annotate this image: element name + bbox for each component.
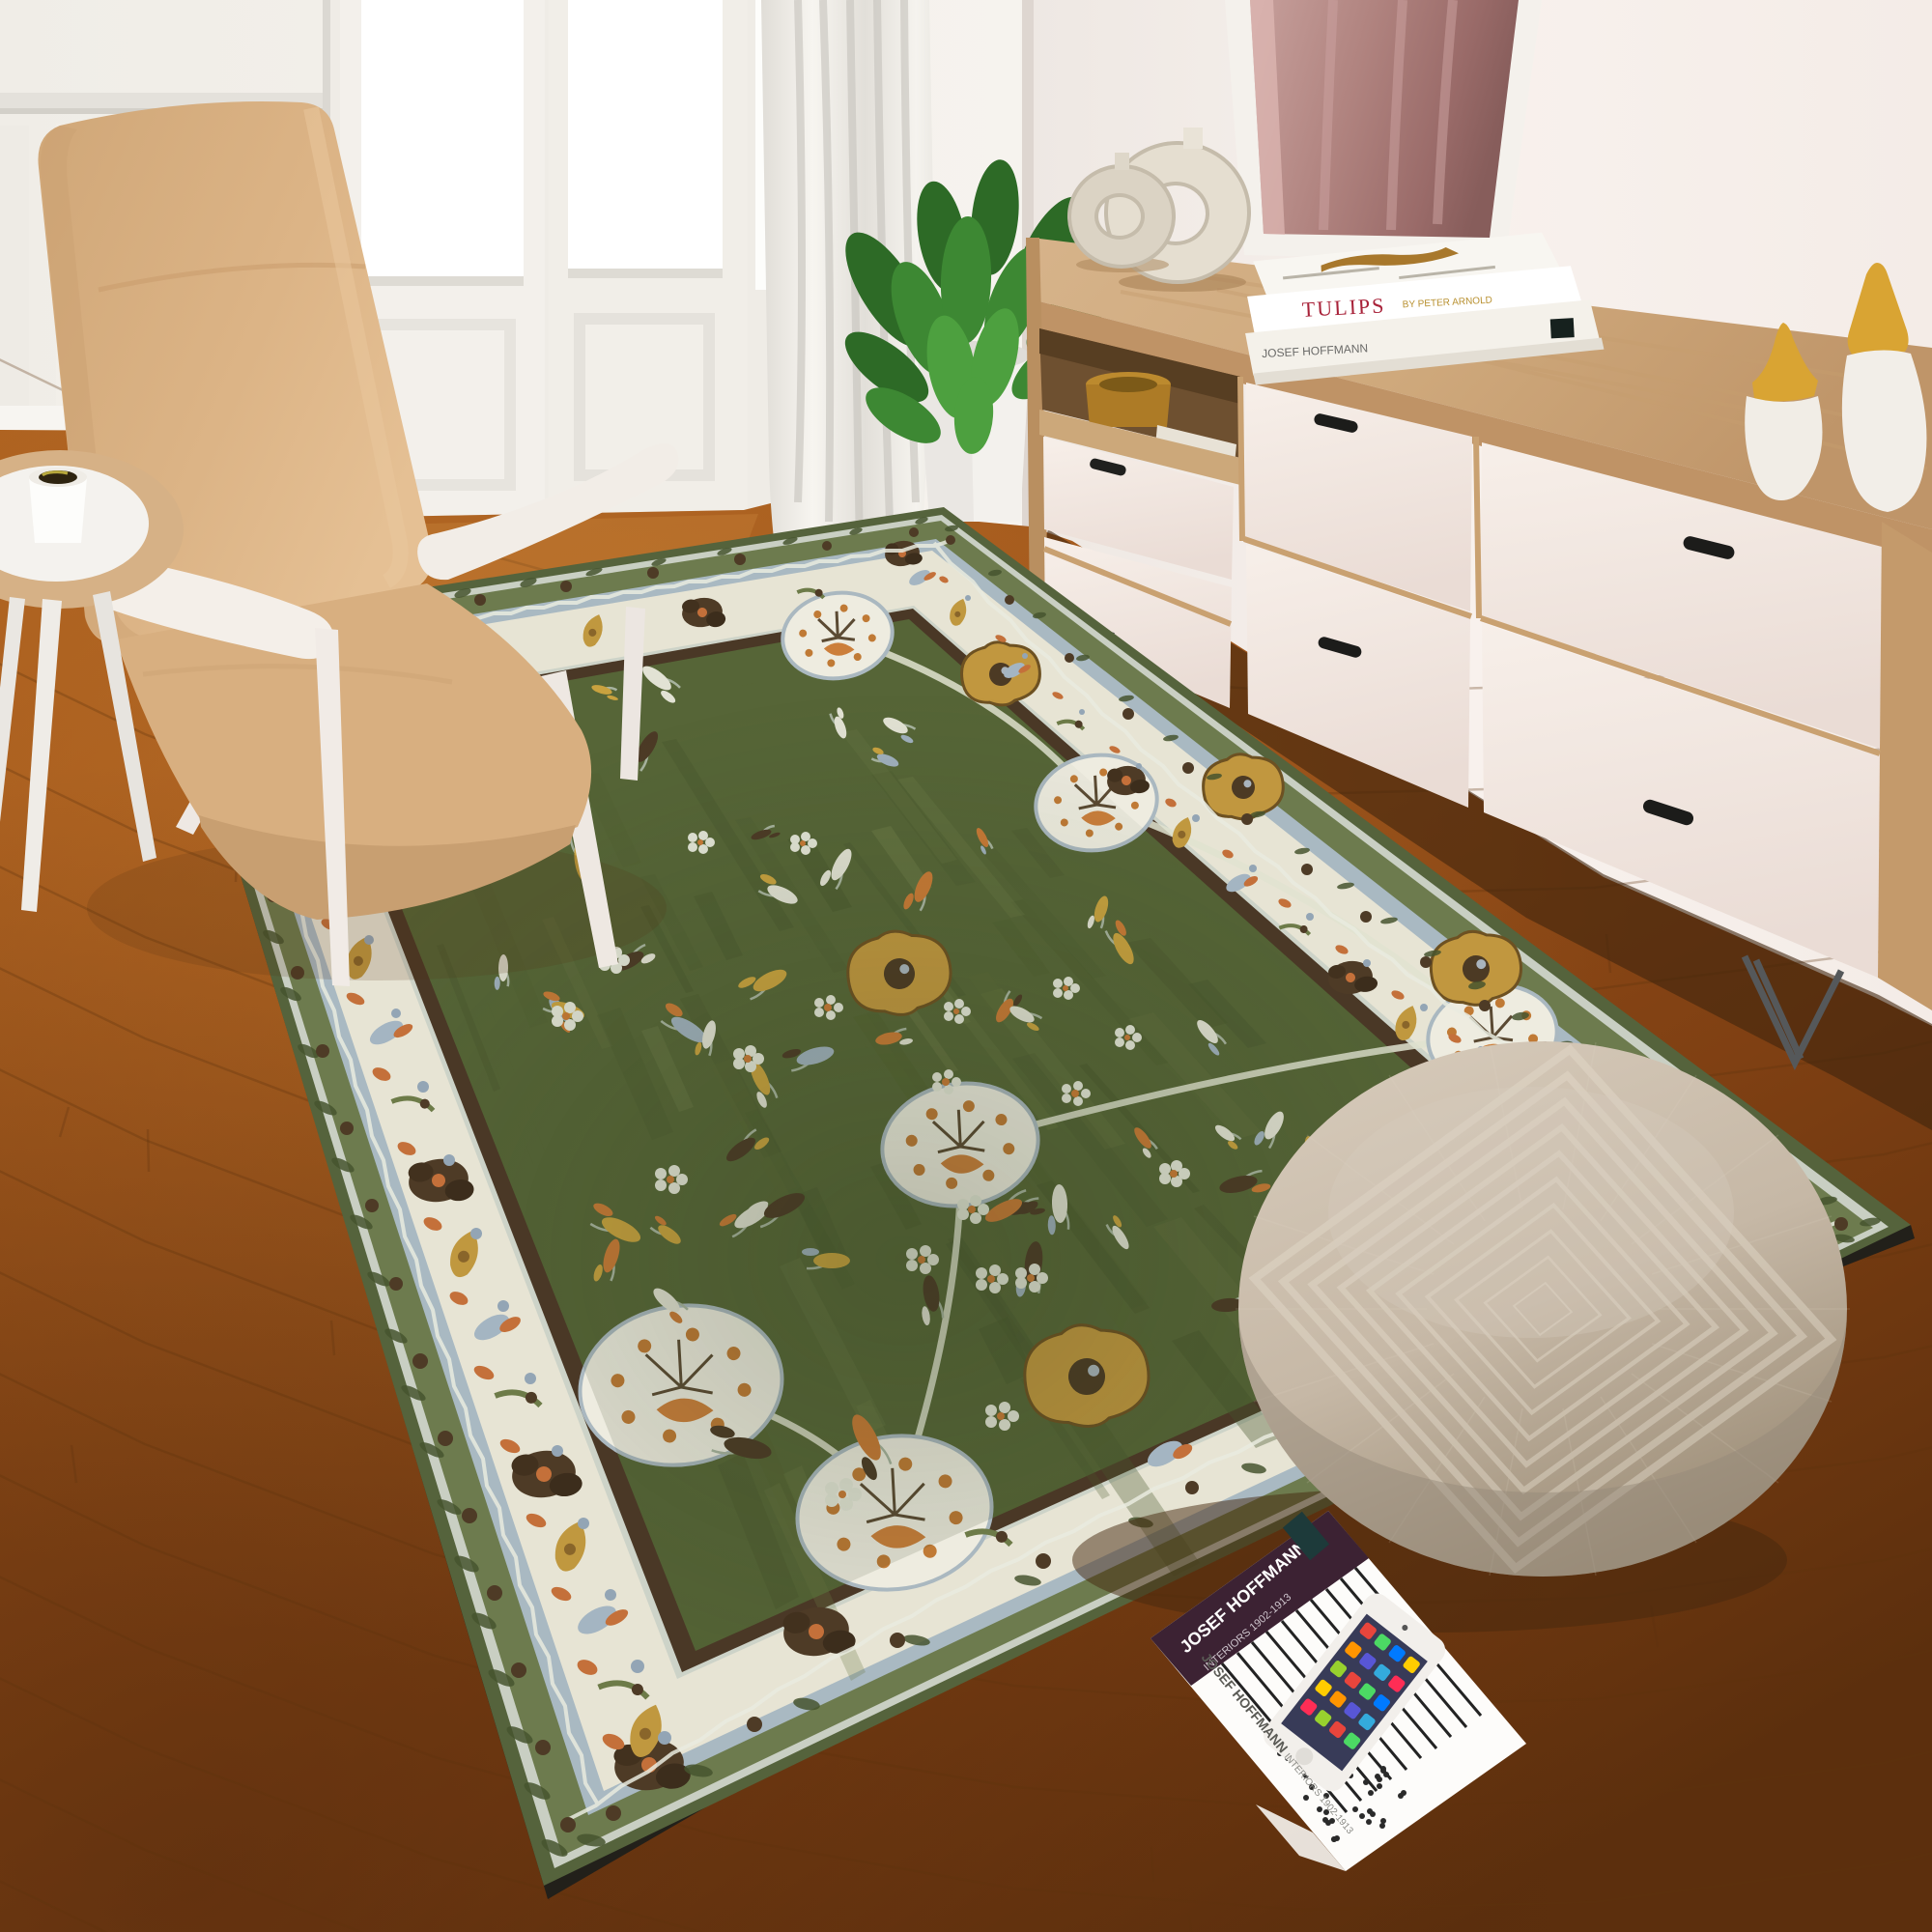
svg-text:TULIPS: TULIPS	[1301, 293, 1386, 321]
